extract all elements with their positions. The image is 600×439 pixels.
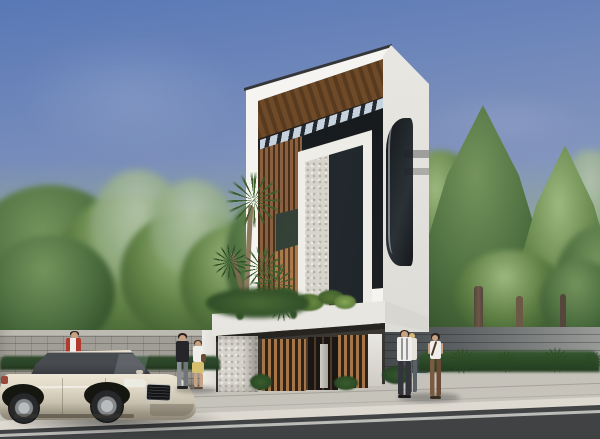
skirt	[192, 362, 204, 373]
legs	[194, 373, 203, 387]
torso	[397, 337, 412, 361]
arm	[441, 343, 443, 354]
pedestrian-white-shirt	[395, 331, 419, 399]
headlight	[124, 378, 146, 387]
street-actors	[0, 0, 600, 439]
torso	[176, 341, 189, 362]
front-grille	[146, 384, 172, 402]
feet	[177, 386, 188, 389]
bumper-shading	[150, 404, 194, 416]
arm	[428, 343, 430, 354]
door-seam	[62, 378, 63, 414]
rear-wheel	[8, 392, 40, 424]
pedestrian-brown-pants	[427, 335, 449, 401]
side-mirror	[136, 370, 143, 374]
feet	[398, 395, 411, 398]
architectural-rendering	[0, 0, 600, 439]
handbag	[201, 354, 206, 362]
pedestrian-yellow-skirt	[190, 341, 210, 391]
rocker-shadow	[14, 414, 134, 418]
feet	[430, 396, 441, 399]
legs	[398, 361, 411, 395]
legs	[177, 362, 188, 387]
taillight	[1, 376, 8, 384]
feet	[194, 387, 203, 389]
suspender-strap	[401, 338, 403, 360]
legs	[430, 359, 441, 396]
suspender-strap	[406, 338, 408, 360]
